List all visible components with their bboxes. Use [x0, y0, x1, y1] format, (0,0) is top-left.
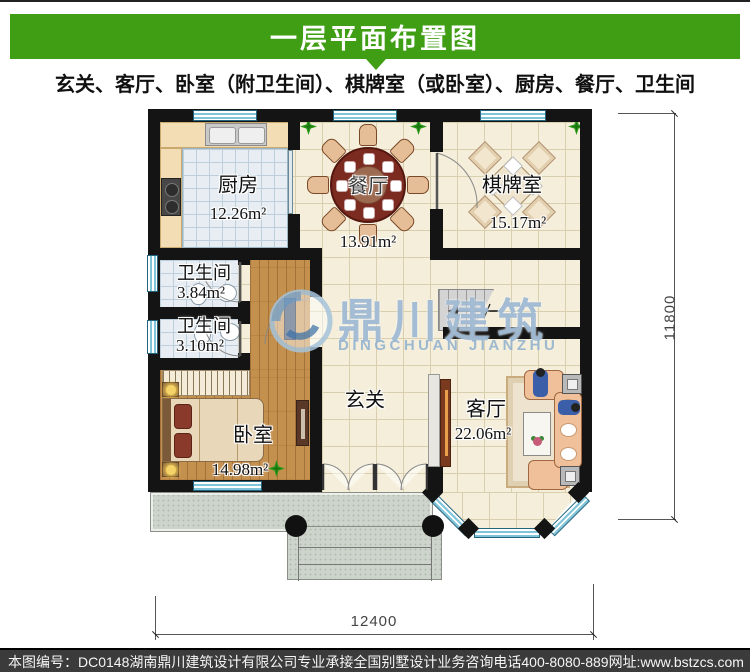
dim-ext-line	[618, 113, 676, 114]
pillow	[174, 433, 192, 458]
footer-bar: 本图编号：DC0148 湖南鼎川建筑设计有限公司专业承接全国别墅设计业务 咨询电…	[0, 648, 750, 672]
window	[193, 110, 257, 121]
plate	[363, 153, 375, 165]
coffee-table	[523, 412, 551, 456]
headboard	[163, 399, 171, 461]
wall	[288, 122, 300, 150]
room-area-bedroom: 14.98m²	[212, 460, 269, 480]
blanket-fold	[199, 399, 200, 461]
plan-number: 本图编号：DC0148	[8, 652, 129, 672]
room-label-bath1: 卫生间	[177, 259, 231, 285]
entry-steps	[287, 526, 442, 580]
pillow	[174, 404, 192, 429]
sink-basin	[238, 127, 265, 144]
person-figure	[558, 400, 580, 415]
chess-room-door	[433, 152, 479, 210]
room-label-bath2: 卫生间	[177, 312, 231, 338]
window	[147, 320, 158, 354]
side-table	[562, 374, 582, 394]
plant-icon	[268, 460, 285, 477]
floor-plan-page: 一层平面布置图 玄关、客厅、卧室（附卫生间）、棋牌室（或卧室）、厨房、餐厅、卫生…	[0, 0, 750, 672]
window	[480, 110, 546, 121]
window	[147, 255, 158, 292]
room-area-dining: 13.91m²	[340, 232, 397, 252]
phone-number: 咨询电话400-8080-889	[465, 652, 608, 672]
wall	[148, 248, 322, 260]
wall	[430, 248, 592, 260]
room-label-chess: 棋牌室	[482, 169, 542, 198]
room-area-living: 22.06m²	[455, 424, 512, 444]
bay-window	[474, 528, 540, 538]
watermark-en: DINGCHUAN JIANZHU	[338, 337, 558, 354]
room-area-bath1: 3.84m²	[177, 283, 225, 303]
dining-chair	[307, 176, 329, 194]
wall	[148, 122, 160, 480]
porch-column	[285, 515, 307, 537]
kitchen-floor	[182, 148, 288, 248]
room-label-dining: 餐厅	[348, 170, 388, 199]
kitchen-sink	[205, 123, 267, 146]
room-label-bedroom: 卧室	[233, 419, 273, 448]
room-label-hall: 玄关	[345, 384, 385, 413]
dining-chair	[359, 124, 377, 146]
entrance-double-door	[322, 452, 428, 492]
plate	[344, 199, 356, 211]
wall	[288, 214, 300, 248]
burner	[165, 200, 179, 214]
room-area-chess: 15.17m²	[490, 213, 547, 233]
wall	[148, 358, 250, 370]
plate	[382, 199, 394, 211]
room-label-living: 客厅	[466, 393, 506, 422]
bedroom-tv-cabinet	[296, 400, 309, 446]
flower-vase	[533, 437, 542, 446]
nightstand	[162, 382, 179, 397]
porch-column	[422, 515, 444, 537]
floor-plan: 鼎川建筑 DINGCHUAN JIANZHU 厨房 12.26m² 餐厅 13.…	[0, 2, 750, 672]
dim-width-label: 12400	[334, 613, 414, 630]
wall	[430, 109, 443, 152]
dingchuan-logo-icon	[268, 288, 334, 354]
dim-height-label: 11800	[662, 278, 679, 358]
dining-chair	[407, 176, 429, 194]
sink-basin	[209, 127, 236, 144]
plate	[390, 180, 402, 192]
plate	[363, 207, 375, 219]
burner	[165, 183, 179, 197]
kitchen-sliding-door	[288, 150, 293, 214]
room-area-bath2: 3.10m²	[176, 336, 224, 356]
room-area-kitchen: 12.26m²	[210, 204, 267, 224]
plate	[336, 180, 348, 192]
stove	[161, 178, 181, 216]
wall	[310, 347, 322, 480]
dim-line-bottom	[155, 634, 594, 635]
company-name: 湖南鼎川建筑设计有限公司专业承接全国别墅设计业务	[129, 652, 465, 672]
window	[193, 481, 262, 491]
dim-ext-line	[593, 584, 594, 640]
website-url: 网址:www.bstzcs.com	[609, 652, 744, 672]
window	[333, 110, 397, 121]
dim-ext-line	[618, 519, 676, 520]
person-figure	[533, 370, 548, 397]
room-label-kitchen: 厨房	[218, 169, 258, 198]
tv-feature-wall	[428, 374, 440, 467]
nightstand	[162, 462, 179, 477]
living-tv-cabinet	[440, 379, 451, 467]
